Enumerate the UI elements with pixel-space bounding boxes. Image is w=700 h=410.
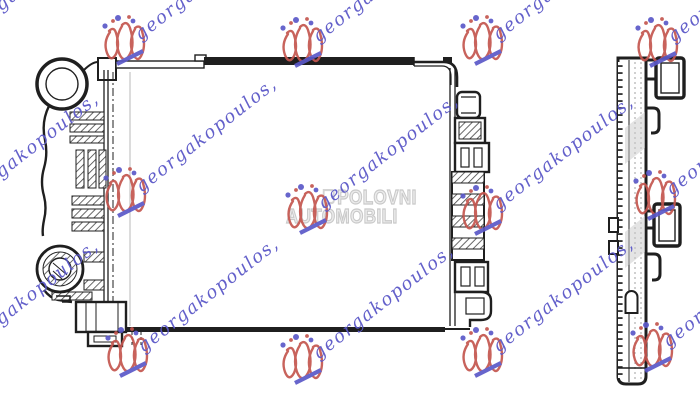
watermark-layer: georgakopoulos, georgakopoulos, — [0, 0, 700, 410]
georgakopoulos-watermark-text: georgakopoulos, — [132, 73, 282, 196]
georgakopoulos-watermark-text: georgakopoulos, — [0, 88, 103, 211]
georgakopoulos-watermark-text: georgakopoulos, — [662, 76, 700, 199]
georgakopoulos-watermark-text: georgakopoulos, — [314, 90, 464, 213]
georgakopoulos-watermark-text: georgakopoulos, — [489, 91, 639, 214]
georgakopoulos-watermark-text: georgakopoulos, — [0, 235, 103, 358]
georgakopoulos-watermark-text: georgakopoulos, — [309, 0, 459, 47]
georgakopoulos-watermark-text: georgakopoulos, — [489, 0, 639, 45]
georgakopoulos-watermark-text: georgakopoulos, — [309, 240, 459, 363]
georgakopoulos-watermark-text: georgakopoulos, — [0, 0, 103, 45]
radiator-listing-image: POLOVNI AUTOMOBILI georgakopoulos, — [0, 0, 700, 410]
georgakopoulos-watermark-text: georgakopoulos, — [489, 233, 639, 356]
georgakopoulos-watermark-text: georgakopoulos, — [131, 0, 281, 45]
georgakopoulos-watermark-text: georgakopoulos, — [134, 233, 284, 356]
georgakopoulos-watermark-text: georgakopoulos, — [659, 228, 700, 351]
